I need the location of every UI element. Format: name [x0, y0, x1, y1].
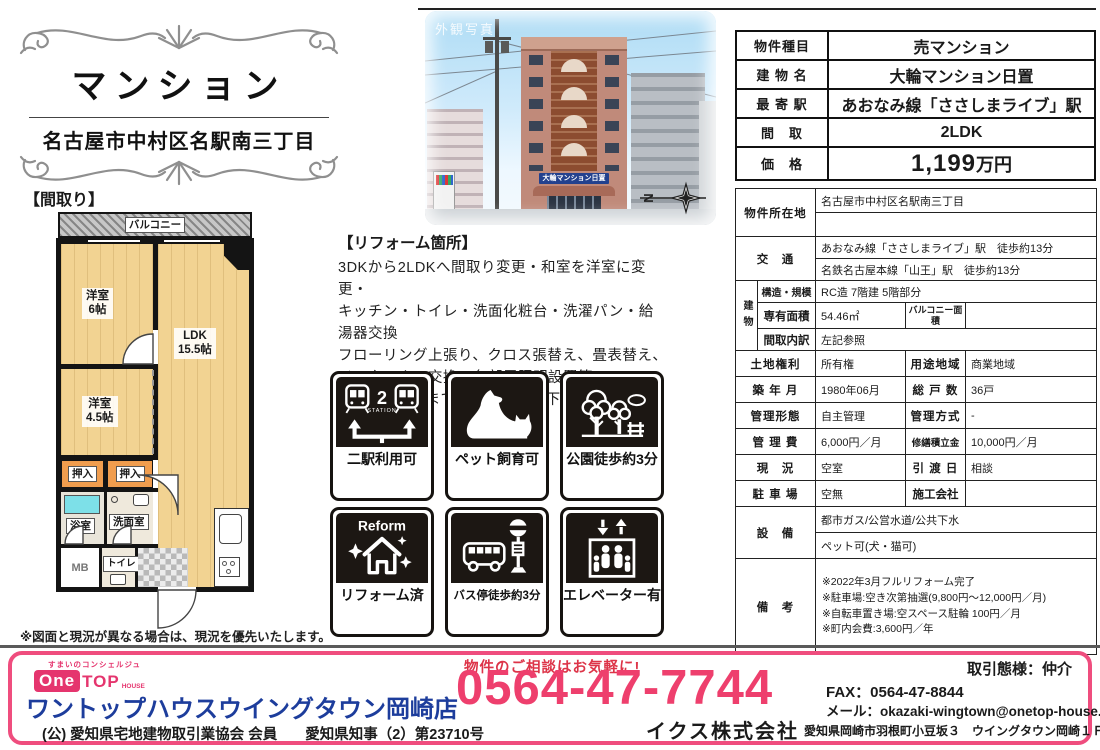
logo-tagline: すまいのコンシェルジュ	[48, 659, 145, 670]
bus-stop-icon	[456, 516, 538, 580]
equipment-value-2: ペット可(犬・猫可)	[816, 533, 1097, 559]
zone-label: 用途地域	[906, 351, 966, 377]
summary-layout-value: 2LDK	[828, 118, 1095, 147]
table-row: 現 況 空室 引 渡 日 相談	[736, 455, 1097, 481]
badge-bus-stop: バス停徒歩約3分	[445, 507, 549, 637]
summary-type-value: 売マンション	[828, 31, 1095, 60]
location-label: 物件所在地	[736, 189, 816, 237]
deal-type: 取引態様：仲介	[967, 658, 1072, 679]
access-value-2: 名鉄名古屋本線「山王」駅 徒歩約13分	[816, 259, 1097, 281]
badge-label: エレベーター有	[566, 583, 658, 607]
table-row: 建物 構造・規模 RC造 7階建 5階部分	[736, 281, 1097, 303]
reform-done-icon: Reform	[341, 516, 423, 580]
photo-parapet	[521, 37, 627, 51]
table-row: 土地権利 所有権 用途地域 商業地域	[736, 351, 1097, 377]
mgmt-fee-value: 6,000円／月	[816, 429, 906, 455]
title-block: マンション 名古屋市中村区名駅南三丁目	[18, 20, 340, 180]
photo-windows-right	[605, 55, 619, 171]
association-membership: (公) 愛知県宅地建物取引業協会 会員	[42, 723, 277, 744]
summary-price-value: 1,199万円	[828, 147, 1095, 180]
balcony-area-value	[966, 303, 1097, 329]
built-value: 1980年06月	[816, 377, 906, 403]
land-label: 土地権利	[736, 351, 816, 377]
pets-allowed-icon	[456, 380, 538, 444]
floorplan-section-label: 【間取り】	[24, 186, 104, 210]
equipment-label: 設 備	[736, 507, 816, 559]
photo-main-building: 大輪マンション日置	[521, 37, 627, 213]
flyer-page: マンション 名古屋市中村区名駅南三丁目	[0, 0, 1100, 750]
structure-label: 構造・規模	[758, 281, 816, 303]
units-label: 総 戸 数	[906, 377, 966, 403]
table-row: 物件種目 売マンション	[736, 31, 1095, 60]
summary-price-label: 価 格	[736, 147, 828, 180]
table-row: 専有面積 54.46㎡ バルコニー面積	[736, 303, 1097, 329]
photo-awning	[533, 186, 615, 196]
fax-number: FAX：0564-47-8844	[826, 681, 964, 702]
floorplan: バルコニー 押入 押入	[56, 210, 254, 592]
area-label: 専有面積	[758, 303, 816, 329]
transformer-2	[501, 41, 509, 53]
remarks-label: 備 考	[736, 559, 816, 655]
summary-station-value: あおなみ線「ささしまライブ」駅	[828, 89, 1095, 118]
photo-brick-column	[551, 51, 597, 171]
mgmt-fee-label: 管 理 費	[736, 429, 816, 455]
summary-table: 物件種目 売マンション 建 物 名 大輪マンション日置 最 寄 駅 あおなみ線「…	[735, 30, 1096, 181]
mgmt-method-value: -	[966, 403, 1097, 429]
status-label: 現 況	[736, 455, 816, 481]
builder-value	[966, 481, 1097, 507]
parking-value: 空無	[816, 481, 906, 507]
svg-text:N: N	[641, 193, 656, 202]
location-value-1: 名古屋市中村区名駅南三丁目	[816, 189, 1097, 213]
badge-park-walk: 公園徒歩約3分	[560, 371, 664, 501]
handover-value: 相談	[966, 455, 1097, 481]
title-address: 名古屋市中村区名駅南三丁目	[18, 125, 340, 154]
badge-two-stations: 2 STATION 二駅利用可	[330, 371, 434, 501]
building-sign: 大輪マンション日置	[539, 173, 609, 184]
page-title: マンション	[18, 58, 340, 109]
table-row: 間取内訳 左記参照	[736, 329, 1097, 351]
compass-icon: N	[638, 180, 710, 216]
table-row: 価 格 1,199万円	[736, 147, 1095, 180]
flourish-ornament-bottom	[19, 154, 339, 190]
remarks-value: ※2022年3月フルリフォーム完了 ※駐車場:空き次第抽選(9,800円～12,…	[816, 559, 1097, 655]
badge-label: バス停徒歩約3分	[451, 583, 543, 607]
table-row: 管 理 費 6,000円／月 修繕積立金 10,000円／月	[736, 429, 1097, 455]
license-number: 愛知県知事（2）第23710号	[305, 723, 484, 744]
mgmt-form-label: 管理形態	[736, 403, 816, 429]
land-value: 所有権	[816, 351, 906, 377]
parking-label: 駐 車 場	[736, 481, 816, 507]
summary-type-label: 物件種目	[736, 31, 828, 60]
zone-value: 商業地域	[966, 351, 1097, 377]
door-arcs	[56, 210, 254, 592]
area-value: 54.46㎡	[816, 303, 906, 329]
badge-label: ペット飼育可	[451, 447, 543, 471]
table-row: 備 考 ※2022年3月フルリフォーム完了 ※駐車場:空き次第抽選(9,800円…	[736, 559, 1097, 655]
location-value-2	[816, 213, 1097, 237]
table-row: 築 年 月 1980年06月 総 戸 数 36戸	[736, 377, 1097, 403]
vending-machine	[433, 171, 455, 213]
summary-station-label: 最 寄 駅	[736, 89, 828, 118]
reform-line: 3DKから2LDKへ間取り変更・和室を洋室に変更・	[338, 257, 668, 301]
onetop-logo: すまいのコンシェルジュ One TOP HOUSE	[34, 659, 145, 692]
utility-pole	[495, 19, 499, 215]
svg-text:STATION: STATION	[367, 408, 396, 414]
phone-number: 0564-47-7744	[456, 664, 773, 713]
footer-divider	[0, 645, 1100, 648]
footer-banner: すまいのコンシェルジュ One TOP HOUSE ワントップハウスウイングタウ…	[8, 651, 1092, 745]
top-divider	[418, 8, 1096, 10]
table-row: 建 物 名 大輪マンション日置	[736, 60, 1095, 89]
badge-label: リフォーム済	[336, 583, 428, 607]
elevator-icon	[574, 516, 650, 580]
badge-pets-allowed: ペット飼育可	[445, 371, 549, 501]
badge-label: 公園徒歩約3分	[566, 447, 658, 471]
transformer	[485, 41, 493, 53]
license-row: (公) 愛知県宅地建物取引業協会 会員 愛知県知事（2）第23710号	[42, 723, 484, 744]
units-value: 36戸	[966, 377, 1097, 403]
photo-watermark: 外観写真	[435, 19, 495, 38]
reform-line: フローリング上張り、クロス張替え、畳表替え、	[338, 345, 668, 367]
table-row: 最 寄 駅 あおなみ線「ささしまライブ」駅	[736, 89, 1095, 118]
svg-text:Reform: Reform	[358, 519, 406, 534]
table-row: 管理形態 自主管理 管理方式 -	[736, 403, 1097, 429]
email-address: メール：okazaki-wingtown@onetop-house.jp	[826, 700, 1100, 720]
layout-detail-label: 間取内訳	[758, 329, 816, 351]
mgmt-form-value: 自主管理	[816, 403, 906, 429]
table-row: 物件所在地 名古屋市中村区名駅南三丁目	[736, 189, 1097, 213]
table-row: 設 備 都市ガス/公営水道/公共下水	[736, 507, 1097, 533]
built-label: 築 年 月	[736, 377, 816, 403]
status-value: 空室	[816, 455, 906, 481]
park-walk-icon	[574, 380, 650, 444]
summary-name-value: 大輪マンション日置	[828, 60, 1095, 89]
title-divider	[29, 117, 329, 118]
reform-heading: 【リフォーム箇所】	[338, 231, 668, 253]
flourish-ornament-top	[19, 20, 339, 56]
detail-table: 物件所在地 名古屋市中村区名駅南三丁目 交 通 あおなみ線「ささしまライブ」駅 …	[735, 188, 1097, 655]
repair-fund-value: 10,000円／月	[966, 429, 1097, 455]
corporation-address: 愛知県岡崎市羽根町小豆坂３ ウイングタウン岡崎１Ｆ	[804, 722, 1100, 739]
table-row: 間 取 2LDK	[736, 118, 1095, 147]
access-label: 交 通	[736, 237, 816, 281]
building-group-label: 建物	[736, 281, 758, 351]
mgmt-method-label: 管理方式	[906, 403, 966, 429]
company-name: ワントップハウスウイングタウン岡崎店	[26, 689, 458, 724]
balcony-area-label: バルコニー面積	[906, 303, 966, 329]
summary-layout-label: 間 取	[736, 118, 828, 147]
handover-label: 引 渡 日	[906, 455, 966, 481]
structure-value: RC造 7階建 5階部分	[816, 281, 1097, 303]
two-stations-icon: 2 STATION	[338, 380, 426, 444]
equipment-value-1: 都市ガス/公営水道/公共下水	[816, 507, 1097, 533]
summary-name-label: 建 物 名	[736, 60, 828, 89]
photo-windows-left	[529, 55, 543, 171]
reform-line: キッチン・トイレ・洗面化粧台・洗濯パン・給湯器交換	[338, 301, 668, 345]
badge-reform-done: Reform リフォーム済	[330, 507, 434, 637]
feature-badges: 2 STATION 二駅利用可	[330, 371, 668, 637]
corporation-name: イクス株式会社	[646, 715, 799, 744]
badge-label: 二駅利用可	[336, 447, 428, 471]
badge-elevator: エレベーター有	[560, 507, 664, 637]
builder-label: 施工会社	[906, 481, 966, 507]
access-value-1: あおなみ線「ささしまライブ」駅 徒歩約13分	[816, 237, 1097, 259]
layout-detail-value: 左記参照	[816, 329, 1097, 351]
svg-text:2: 2	[377, 387, 387, 408]
table-row: 駐 車 場 空無 施工会社	[736, 481, 1097, 507]
floorplan-note: ※図面と現況が異なる場合は、現況を優先いたします。	[20, 626, 331, 645]
table-row: 交 通 あおなみ線「ささしまライブ」駅 徒歩約13分	[736, 237, 1097, 259]
repair-fund-label: 修繕積立金	[906, 429, 966, 455]
